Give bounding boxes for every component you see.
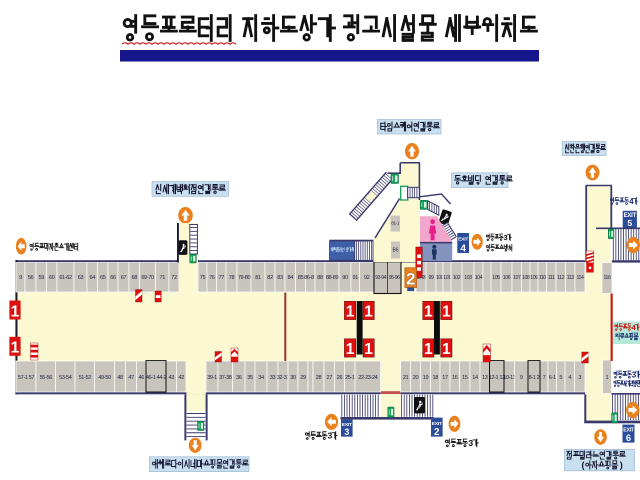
svg-text:75: 75 [200,275,206,281]
svg-text:81: 81 [255,275,261,281]
svg-text:108: 108 [522,275,530,281]
svg-text:49-50: 49-50 [98,375,111,381]
svg-text:79-80: 79-80 [238,275,251,281]
svg-text:35: 35 [247,375,253,381]
svg-text:55-56: 55-56 [40,375,53,381]
svg-text:29: 29 [300,375,306,381]
svg-text:3: 3 [344,427,349,437]
svg-text:110: 110 [539,275,547,281]
svg-text:32-31: 32-31 [277,375,290,381]
svg-text:88: 88 [317,275,323,281]
svg-text:43: 43 [169,375,175,381]
svg-text:84: 84 [288,275,294,281]
svg-text:B6: B6 [392,248,398,254]
svg-text:106: 106 [503,275,511,281]
svg-text:21: 21 [403,375,409,381]
svg-text:76: 76 [209,275,215,281]
svg-text:91: 91 [353,275,359,281]
svg-text:105: 105 [492,275,500,281]
svg-text:EXIT: EXIT [458,237,468,243]
svg-text:61-62: 61-62 [59,275,72,281]
svg-text:103: 103 [464,275,472,281]
svg-text:1: 1 [11,340,20,357]
svg-text:5: 5 [627,218,632,228]
svg-text:63: 63 [78,275,84,281]
svg-text:19: 19 [423,375,429,381]
svg-text:1: 1 [346,304,355,321]
svg-text:99: 99 [429,275,434,281]
svg-text:82: 82 [267,275,273,281]
svg-text:77: 77 [219,275,225,281]
svg-text:65: 65 [100,275,106,281]
svg-text:(: ( [582,460,585,470]
svg-text:20: 20 [413,375,419,381]
svg-text:6-1: 6-1 [549,375,556,381]
svg-text:95-96: 95-96 [389,275,400,281]
svg-text:64: 64 [90,275,96,281]
svg-text:28: 28 [316,375,322,381]
svg-text:113: 113 [567,275,575,281]
svg-text:1: 1 [364,341,373,358]
svg-text:3: 3 [504,233,508,242]
svg-text:1: 1 [11,303,20,320]
svg-text:88-89: 88-89 [326,275,339,281]
svg-text:1: 1 [605,375,608,381]
svg-text:5: 5 [559,375,562,381]
svg-text:66: 66 [110,275,116,281]
svg-text:2: 2 [434,427,440,438]
svg-text:14: 14 [472,375,478,381]
svg-text:59: 59 [39,275,45,281]
svg-text:92: 92 [364,275,370,281]
svg-text:26: 26 [337,375,343,381]
svg-text:EXIT: EXIT [432,421,442,427]
svg-text:46-1 44-2: 46-1 44-2 [146,375,167,381]
svg-text:1: 1 [442,304,451,321]
svg-text:57-1 57: 57-1 57 [18,375,34,381]
svg-text:69-70: 69-70 [141,275,154,281]
svg-text:42: 42 [179,375,185,381]
svg-text:2: 2 [406,269,415,288]
svg-text:9: 9 [19,275,22,281]
svg-text:18: 18 [433,375,439,381]
svg-text:4: 4 [460,243,466,254]
svg-text:16: 16 [452,375,458,381]
svg-text:15: 15 [462,375,468,381]
svg-text:1: 1 [364,304,373,321]
svg-text:107: 107 [513,275,521,281]
svg-text:111: 111 [548,275,555,281]
svg-text:90: 90 [342,275,348,281]
svg-text:48: 48 [117,375,123,381]
svg-text:47: 47 [128,375,134,381]
svg-text:78: 78 [229,275,235,281]
svg-text:8-1 2: 8-1 2 [529,375,540,381]
svg-text:25-1: 25-1 [345,375,355,381]
svg-text:3: 3 [578,375,581,381]
svg-text:112: 112 [557,275,565,281]
svg-text:81-1: 81-1 [391,221,400,226]
svg-text:116: 116 [603,275,611,281]
svg-text:1: 1 [346,341,355,358]
svg-text:68: 68 [132,275,138,281]
svg-text:36: 36 [236,375,242,381]
svg-text:60: 60 [49,275,55,281]
svg-text:51-52: 51-52 [79,375,92,381]
svg-text:83: 83 [277,275,283,281]
svg-text:17: 17 [442,375,448,381]
svg-text:114: 114 [576,275,584,281]
svg-text:37-38: 37-38 [219,375,232,381]
svg-text:1: 1 [442,341,451,358]
svg-text:6: 6 [626,433,631,443]
svg-text:13: 13 [482,375,488,381]
svg-text:39-1: 39-1 [207,375,217,381]
svg-text:22-23-24: 22-23-24 [358,375,377,381]
svg-text:4: 4 [568,375,571,381]
svg-text:27: 27 [327,375,333,381]
svg-text:10-11: 10-11 [503,375,515,381]
svg-text:1: 1 [424,304,433,321]
svg-text:67: 67 [121,275,127,281]
svg-text:46: 46 [139,375,145,381]
svg-text:): ) [620,460,623,470]
svg-text:30: 30 [290,375,296,381]
svg-text:33: 33 [270,375,276,381]
svg-text:72: 72 [171,275,177,281]
svg-text:102: 102 [453,275,461,281]
svg-text:85: 85 [298,275,304,281]
svg-text:71: 71 [160,275,166,281]
svg-text:56: 56 [28,275,34,281]
svg-text:104: 104 [475,275,483,281]
svg-text:7: 7 [543,375,546,381]
svg-text:93-94: 93-94 [375,275,386,281]
svg-text:109: 109 [530,275,538,281]
svg-text:53-54: 53-54 [59,375,72,381]
svg-text:9: 9 [520,375,523,381]
svg-text:1: 1 [424,341,433,358]
svg-text:101: 101 [443,275,451,281]
svg-text:34: 34 [258,375,264,381]
